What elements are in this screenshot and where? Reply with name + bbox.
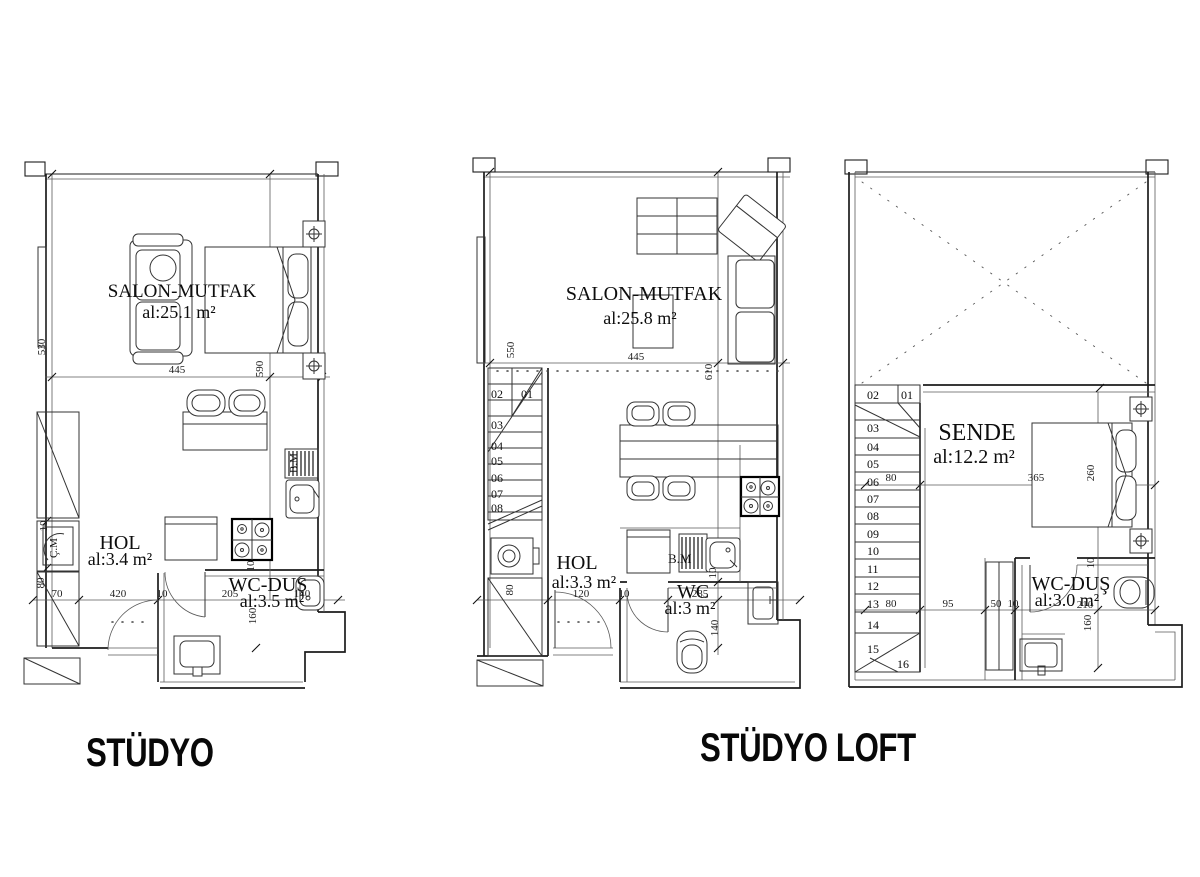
plan-studyo-loft-ground: SALON-MUTFAK al:25.8 m² HOL al:3.3 m² WC… (473, 158, 804, 688)
room-area-hol: al:3.4 m² (88, 549, 152, 569)
dim-label: 210 (1077, 599, 1094, 611)
dim-label: 80 (35, 577, 47, 589)
stair-number: 01 (521, 387, 533, 401)
window-icon (38, 247, 46, 347)
wardrobe-icon (37, 412, 79, 518)
dim-label: 10 (157, 588, 169, 600)
toilet-icon (174, 636, 220, 676)
kitchen-sink-icon (286, 480, 319, 518)
stair-number: 01 (901, 388, 913, 402)
dim-label: 10 (619, 588, 631, 600)
kitchen-cabinet-icon (627, 530, 670, 573)
dim-label: 530 (36, 338, 48, 355)
stair-number: 13 (867, 597, 879, 611)
stair-number: 04 (491, 439, 503, 453)
wardrobe-icon (986, 562, 1013, 670)
stair-number: 02 (491, 387, 503, 401)
stair-number: 10 (867, 544, 879, 558)
sectional-sofa-icon (637, 194, 787, 364)
washbasin-icon (1020, 639, 1062, 675)
dim-label: 80 (886, 472, 898, 484)
floor-plans-canvas: SALON-MUTFAK al:25.1 m² HOL al:3.4 m² WC… (0, 0, 1200, 877)
dim-label: 160 (1082, 614, 1094, 631)
dining-chairs-icon (627, 402, 695, 500)
room-area-sende: al:12.2 m² (933, 446, 1015, 468)
dim-label: 10 (245, 560, 257, 572)
stair-number: 07 (867, 492, 879, 506)
side-table-icon (1130, 397, 1152, 421)
dim-label: 445 (628, 351, 645, 363)
wc-door-swing-icon (165, 572, 205, 617)
stair-number: 02 (867, 388, 879, 402)
dim-label: 80 (886, 598, 898, 610)
dim-label: 140 (294, 588, 311, 600)
staircase (855, 385, 920, 672)
room-area-salon-mutfak: al:25.1 m² (142, 302, 215, 322)
stair-number: 06 (491, 471, 503, 485)
room-label-hol: HOL (556, 552, 597, 574)
dim-label: 10 (1008, 598, 1020, 610)
dim-label: 550 (505, 341, 517, 358)
svg-text:STÜDYO LOFT: STÜDYO LOFT (700, 725, 916, 770)
balcony-shaft-icon (24, 658, 80, 684)
stove-icon (741, 477, 779, 516)
side-table-icon (303, 221, 325, 247)
dim-label: 610 (703, 363, 715, 380)
dim-label: 590 (254, 360, 266, 377)
dim-label: 365 (1028, 472, 1045, 484)
balcony-shaft-icon (477, 660, 543, 686)
room-label-salon-mutfak: SALON-MUTFAK (566, 283, 723, 305)
stove-icon (232, 519, 272, 560)
svg-text:STÜDYO: STÜDYO (86, 730, 214, 775)
stair-number: 04 (867, 440, 879, 454)
stair-number: 05 (491, 454, 503, 468)
floor-plan-sheet: SALON-MUTFAK al:25.1 m² HOL al:3.4 m² WC… (0, 0, 1200, 877)
stair-number: 14 (867, 618, 879, 632)
dim-label: 445 (169, 364, 186, 376)
stair-number: 07 (491, 487, 503, 501)
dim-label: 285 (692, 588, 709, 600)
plan-title-studyo: STÜDYO (86, 730, 214, 775)
stair-number: 15 (867, 642, 879, 656)
kitchen-sink-icon (706, 538, 740, 572)
appliance-label-dishwasher: B.M (288, 453, 300, 473)
dim-label: 50 (991, 598, 1003, 610)
dim-label: 205 (222, 588, 239, 600)
stair-number: 03 (491, 418, 503, 432)
stair-number: 05 (867, 457, 879, 471)
stair-number: 06 (867, 475, 879, 489)
dim-label: 10 (707, 567, 719, 579)
dim-label: 10 (38, 520, 50, 532)
appliance-label-washing-machine: Ç.M (48, 538, 60, 558)
stair-number: 16 (897, 657, 909, 671)
bar-counter-icon (183, 412, 267, 450)
side-table-icon (1130, 529, 1152, 553)
kitchen-cabinet-icon (165, 517, 217, 560)
dim-label: 95 (943, 598, 955, 610)
room-label-salon-mutfak: SALON-MUTFAK (108, 281, 257, 302)
dim-label: 140 (709, 619, 721, 636)
stair-number: 09 (867, 527, 879, 541)
plan-studyo-loft-upper: SENDE al:12.2 m² WC-DUŞ al:3.0 m² 80 365… (845, 160, 1182, 687)
stair-number: 08 (491, 501, 503, 515)
dim-label: 420 (110, 588, 127, 600)
dim-label: 160 (247, 607, 259, 624)
room-label-sende: SENDE (938, 420, 1015, 446)
dining-table-icon (620, 425, 778, 477)
wc-door-swing-icon (627, 588, 668, 632)
appliance-label-dishwasher: B.M (668, 551, 692, 566)
dim-label: 70 (52, 588, 64, 600)
plan-title-studyo-loft: STÜDYO LOFT (700, 725, 916, 770)
dim-label: 10 (1085, 557, 1097, 569)
stair-number: 03 (867, 421, 879, 435)
bed-icon (1032, 423, 1136, 527)
room-area-salon-mutfak: al:25.8 m² (603, 308, 676, 328)
stair-number: 08 (867, 509, 879, 523)
dim-label: 260 (1085, 464, 1097, 481)
room-area-wc: al:3 m² (665, 598, 716, 618)
plan-studyo: SALON-MUTFAK al:25.1 m² HOL al:3.4 m² WC… (24, 162, 345, 688)
entry-door-swing-icon (108, 600, 158, 650)
dim-label: 120 (573, 588, 590, 600)
stair-number: 11 (867, 562, 879, 576)
side-table-icon (303, 353, 325, 379)
dim-label: 80 (504, 584, 516, 596)
toilet-icon (677, 631, 707, 673)
stair-number: 12 (867, 579, 879, 593)
washing-machine-icon (491, 538, 539, 574)
